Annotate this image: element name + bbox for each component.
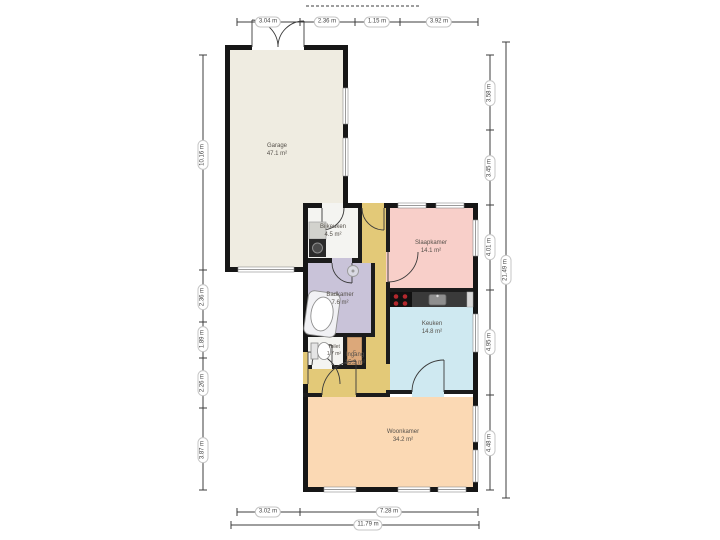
wall-segment — [384, 203, 398, 208]
dim-label-top-3: 1.15 m — [364, 17, 390, 28]
dim-label-bottom-1: 3.02 m — [255, 507, 281, 518]
dim-label-right-total: 21.49 m — [501, 255, 512, 285]
doorway-floor — [332, 258, 352, 263]
room-label-garage: Garage — [267, 143, 288, 149]
floorplan-drawing: Garage 47.1 m² Bijkeuken 4.5 m² Slaapkam… — [0, 0, 720, 540]
dim-label-right-4: 4.95 m — [485, 329, 496, 355]
faucet-icon — [436, 295, 438, 297]
washer-door-icon — [313, 243, 323, 253]
room-area-bijkeuken: 4.5 m² — [324, 232, 341, 238]
room-area-garage: 47.1 m² — [267, 151, 287, 157]
wall-segment — [426, 203, 436, 208]
dim-label-top-4: 3.92 m — [426, 17, 452, 28]
room-label-slaapkamer: Slaapkamer — [415, 240, 447, 246]
dim-label-bottom-total: 11.79 m — [353, 520, 382, 531]
room-label-ingang: Ingang — [346, 352, 364, 358]
wall-segment — [386, 282, 390, 364]
wall-segment — [444, 390, 473, 394]
wall-segment — [358, 208, 362, 263]
doorway-floor — [312, 365, 332, 369]
kitchen-counter-end — [467, 292, 473, 307]
dim-label-right-1: 3.58 m — [485, 80, 496, 106]
room-label-woonkamer: Woonkamer — [387, 429, 419, 435]
wall-segment — [473, 203, 478, 220]
doorway-floor — [412, 390, 444, 397]
room-area-badkamer: 7.6 m² — [331, 300, 348, 306]
wall-segment — [343, 124, 348, 138]
wall-segment — [303, 487, 324, 492]
toilet-tank-icon — [311, 343, 318, 359]
wall-segment — [356, 487, 398, 492]
dim-label-left-1: 10.16 m — [198, 140, 209, 170]
dim-label-right-5: 4.48 m — [485, 430, 496, 456]
doorway-floor — [322, 203, 344, 208]
room-area-slaapkamer: 14.1 m² — [421, 248, 441, 254]
burner-icon — [394, 301, 399, 306]
burner-icon — [403, 294, 408, 299]
wall-segment — [225, 267, 238, 272]
wall-segment — [303, 384, 308, 492]
dim-label-left-2: 2.36 m — [198, 284, 209, 310]
stove-icon — [390, 292, 412, 307]
dim-label-right-2: 3.45 m — [485, 155, 496, 181]
wall-segment — [225, 45, 230, 272]
burner-icon — [403, 301, 408, 306]
wall-segment — [356, 393, 390, 397]
room-area-ingang: 15.3 m² — [345, 360, 365, 366]
dim-label-top-1: 3.04 m — [255, 17, 281, 28]
dim-label-left-5: 3.87 m — [198, 437, 209, 463]
doorway-floor — [322, 393, 356, 397]
dim-label-left-3: 1.89 m — [198, 326, 209, 352]
room-area-keuken: 14.8 m² — [422, 329, 442, 335]
doorway-floor — [362, 203, 384, 208]
dim-label-bottom-2: 7.28 m — [376, 507, 402, 518]
floorplan-canvas: Garage 47.1 m² Bijkeuken 4.5 m² Slaapkam… — [0, 0, 720, 540]
wall-segment — [308, 365, 312, 369]
wall-segment — [371, 263, 375, 337]
wall-segment — [430, 487, 438, 492]
dim-label-left-4: 2.26 m — [198, 370, 209, 396]
wall-segment — [308, 258, 332, 263]
wall-segment — [303, 203, 322, 208]
room-label-bijkeuken: Bijkeuken — [320, 224, 346, 230]
room-label-badkamer: Badkamer — [326, 292, 353, 298]
wall-segment — [352, 258, 362, 263]
wall-segment — [386, 288, 473, 292]
dim-label-right-3: 4.01 m — [485, 234, 496, 260]
shower-drain-icon — [352, 270, 355, 273]
room-woonkamer — [308, 397, 473, 487]
wall-segment — [473, 442, 478, 450]
hall-kitchen-opening-floor — [386, 364, 390, 393]
wall-segment — [344, 203, 362, 208]
wall-segment — [304, 45, 348, 50]
room-area-woonkamer: 34.2 m² — [393, 437, 413, 443]
room-area-toilet: 1.7 m² — [327, 351, 342, 357]
dim-label-top-2: 2.36 m — [314, 17, 340, 28]
room-label-toilet: Toilet — [328, 344, 340, 350]
wall-segment — [473, 256, 478, 314]
wall-segment — [466, 487, 478, 492]
burner-icon — [394, 294, 399, 299]
doorway-floor — [303, 352, 308, 384]
room-label-keuken: Keuken — [422, 321, 442, 327]
wall-segment — [473, 352, 478, 406]
wall-segment — [303, 393, 322, 397]
wall-segment — [343, 45, 348, 88]
wall-segment — [386, 208, 390, 252]
